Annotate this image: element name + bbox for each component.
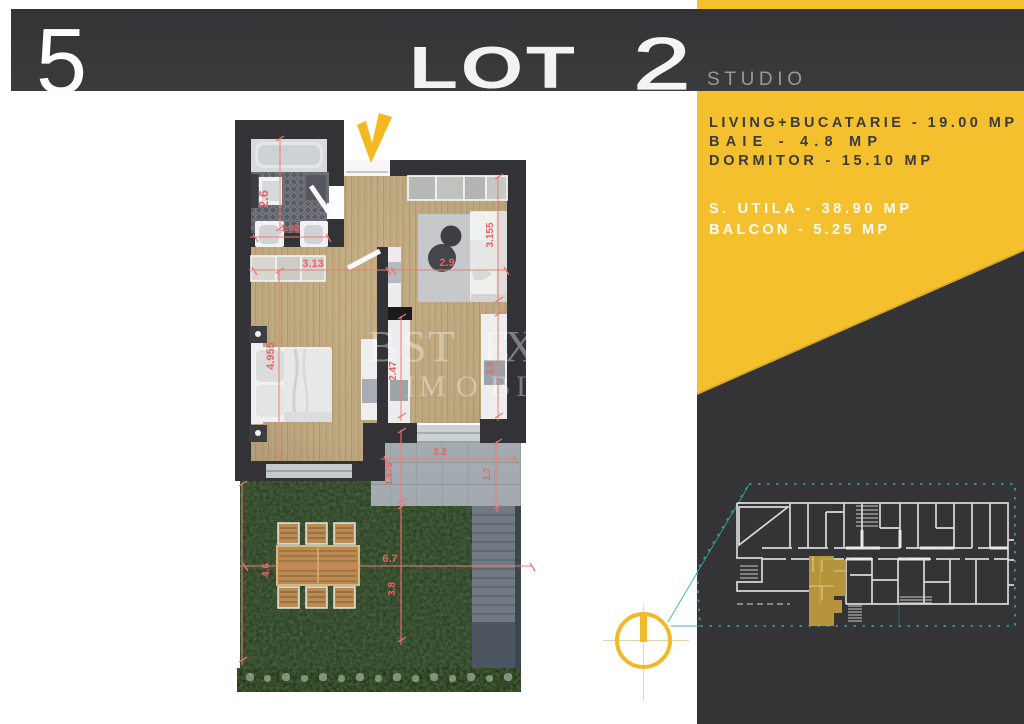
svg-text:3.8: 3.8 <box>387 582 398 596</box>
svg-text:BAIE - 4.8 MP: BAIE - 4.8 MP <box>709 134 877 150</box>
svg-text:3.155: 3.155 <box>485 222 496 247</box>
svg-text:2.47: 2.47 <box>388 361 399 381</box>
svg-text:2.9: 2.9 <box>439 257 454 269</box>
svg-text:4.955: 4.955 <box>265 342 277 370</box>
svg-text:M: M <box>419 370 446 403</box>
svg-text:O: O <box>456 370 478 403</box>
svg-text:1.575: 1.575 <box>384 463 394 486</box>
svg-text:2.5: 2.5 <box>485 362 495 375</box>
svg-text:3.13: 3.13 <box>302 258 323 270</box>
svg-text:DORMITOR - 15.10 MP: DORMITOR - 15.10 MP <box>709 153 930 169</box>
svg-text:3.2: 3.2 <box>433 447 447 458</box>
svg-text:2.6: 2.6 <box>256 190 271 208</box>
svg-text:S: S <box>402 322 426 371</box>
svg-text:2: 2 <box>633 23 691 104</box>
svg-text:T: T <box>428 322 455 371</box>
svg-text:4.6: 4.6 <box>261 563 272 577</box>
svg-text:5: 5 <box>36 9 87 113</box>
svg-text:S. UTILA - 38.90 MP: S. UTILA - 38.90 MP <box>709 201 909 217</box>
svg-text:6.7: 6.7 <box>382 553 397 565</box>
svg-text:1.92: 1.92 <box>281 223 300 234</box>
svg-text:LOT: LOT <box>409 34 578 100</box>
svg-text:1.7: 1.7 <box>482 468 492 481</box>
svg-text:I: I <box>405 370 415 403</box>
